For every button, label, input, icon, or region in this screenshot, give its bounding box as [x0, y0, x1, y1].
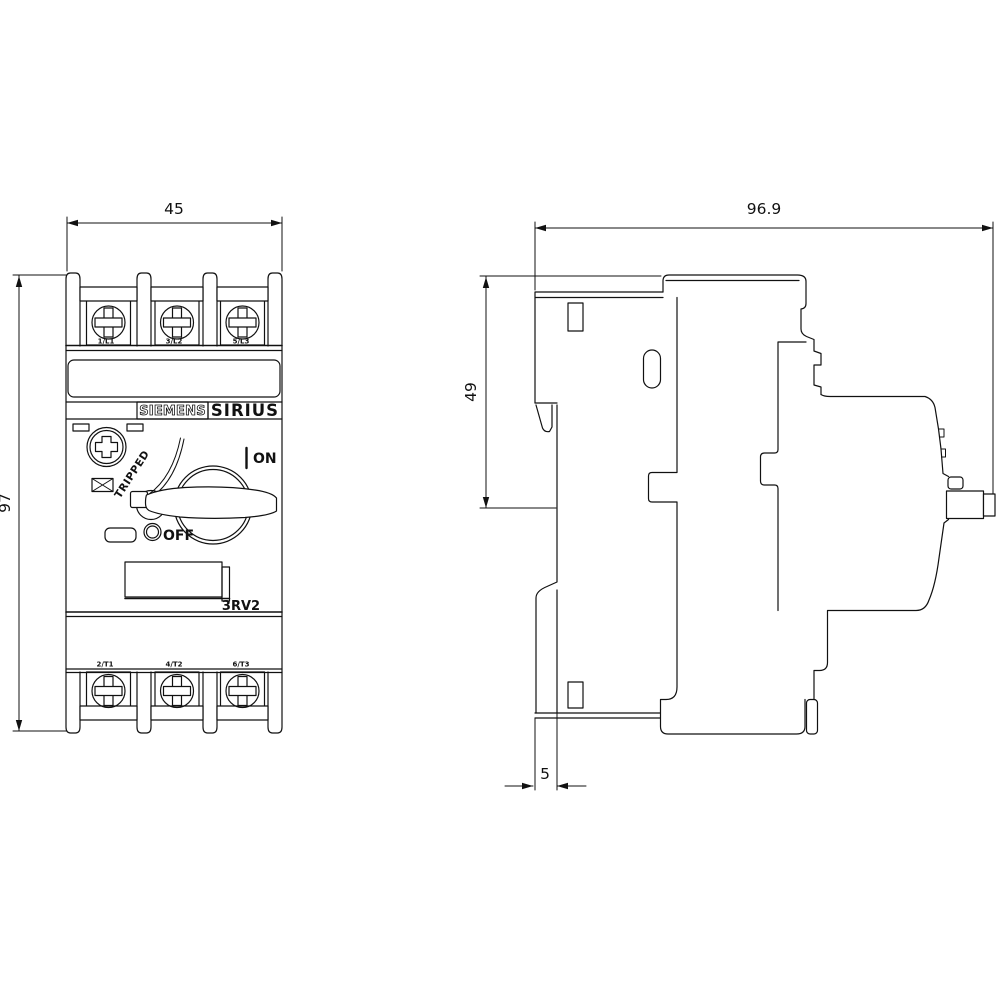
test-button-icon[interactable]: [92, 479, 113, 492]
terminal-label: 5/L3: [233, 338, 250, 346]
front-width-value: 45: [164, 200, 184, 218]
blank-label-area: [68, 360, 280, 397]
terminal-label: 1/L1: [98, 338, 115, 346]
model-label: 3RV2: [222, 599, 260, 614]
rotary-handle[interactable]: [146, 487, 277, 519]
drawing-svg: 45 97: [0, 0, 1000, 1000]
dim-front-width: 45: [67, 200, 282, 271]
adjustment-dial-icon[interactable]: [87, 428, 126, 467]
front-controls: TRIPPED ON OFF: [73, 424, 277, 614]
side-front-lower: [814, 520, 949, 700]
on-label: ON: [253, 451, 277, 467]
handle-tab: [131, 492, 148, 508]
side-height-value: 49: [462, 382, 480, 402]
screw-terminal-icon: [226, 306, 259, 339]
off-marker: OFF: [144, 524, 194, 545]
side-rail-section: [535, 292, 818, 734]
bottom-tab: [137, 672, 151, 733]
terminal-label: 6/T3: [232, 661, 249, 669]
marker-slot: [127, 424, 143, 431]
off-label: OFF: [163, 528, 194, 544]
side-knob: [947, 477, 996, 519]
dim-side-height: 49: [462, 276, 661, 508]
front-view: 45 97: [0, 200, 282, 733]
terminal-clamp: [80, 287, 137, 301]
din-rail-hook-upper: [535, 403, 557, 432]
series-label: SIRIUS: [211, 401, 279, 420]
side-interior-edge: [761, 342, 807, 611]
side-top-block: [663, 275, 821, 395]
front-bottom-terminal-block: 2/T1 4/T2 6/T3: [66, 661, 282, 734]
din-rail-clip-lower: [536, 405, 557, 713]
top-tab: [137, 273, 151, 346]
dim-side-rail: 5: [505, 713, 586, 790]
knob-body: [947, 491, 984, 519]
dimension-drawing-page: 45 97: [0, 0, 1000, 1000]
terminal-label: 3/L2: [166, 338, 183, 346]
screw-terminal-icon: [92, 675, 125, 708]
side-front-shelf: [821, 395, 949, 477]
terminal-clamp: [151, 287, 203, 301]
label-window: [125, 562, 230, 601]
mounting-slot: [568, 303, 583, 331]
screw-terminal-icon: [226, 675, 259, 708]
knob-handle-tip: [948, 477, 963, 489]
side-housing: [663, 275, 995, 700]
screw-terminal-icon: [161, 675, 194, 708]
terminal-label: 4/T2: [165, 661, 182, 669]
side-rail-value: 5: [540, 765, 550, 783]
bottom-tab: [66, 672, 80, 733]
reset-button[interactable]: [105, 528, 136, 542]
bottom-tab: [268, 672, 282, 733]
side-body-back-edge: [649, 298, 806, 735]
vent-slot: [644, 350, 661, 388]
top-tab: [268, 273, 282, 346]
terminal-label: 2/T1: [96, 661, 113, 669]
rotary-knob[interactable]: [131, 466, 277, 544]
dim-front-height: 97: [0, 275, 66, 731]
front-height-value: 97: [0, 493, 14, 513]
screw-terminal-icon: [92, 306, 125, 339]
brand-label: SIEMENS: [139, 404, 206, 419]
terminal-clamp: [217, 287, 268, 301]
side-depth-value: 96.9: [747, 200, 782, 218]
front-top-terminal-block: 1/L1 3/L2 5/L3: [66, 273, 282, 346]
foot-tab: [807, 700, 818, 735]
marker-slot: [73, 424, 89, 431]
top-tab: [203, 273, 217, 346]
screw-terminal-icon: [161, 306, 194, 339]
knob-cap: [984, 494, 996, 516]
side-view: 96.9 49 5: [462, 200, 995, 790]
on-marker: ON: [247, 448, 277, 468]
top-tab: [66, 273, 80, 346]
bottom-tab: [203, 672, 217, 733]
dim-side-depth: 96.9: [535, 200, 993, 494]
mounting-slot: [568, 682, 583, 708]
